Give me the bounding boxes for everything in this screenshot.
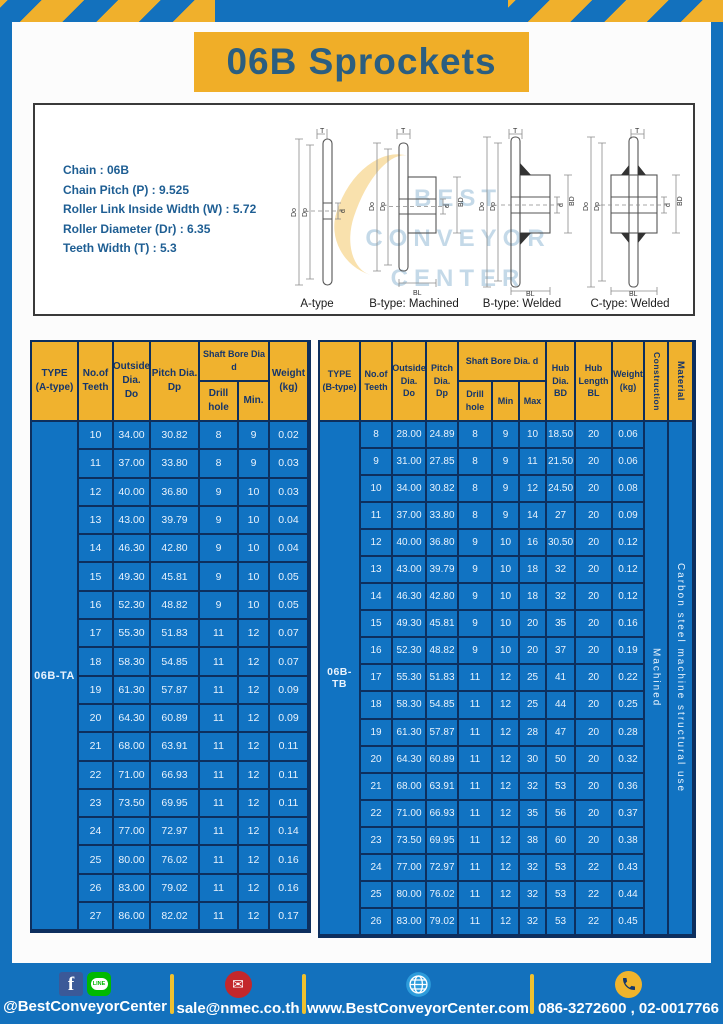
- table-cell: 21: [361, 774, 393, 801]
- table-cell: 49.30: [114, 563, 151, 591]
- table-cell: 12: [239, 733, 270, 761]
- table-cell: 32: [520, 882, 547, 909]
- column-header-max: Max: [520, 382, 547, 422]
- svg-text:Do: Do: [583, 202, 590, 211]
- corner-stripes-right: [508, 0, 723, 22]
- table-cell: 20: [576, 692, 613, 719]
- svg-text:BL: BL: [629, 291, 638, 297]
- sprocket-a-type-drawing: T Do Dp d: [275, 127, 359, 297]
- table-cell: 12: [520, 476, 547, 503]
- figure-label: A-type: [300, 298, 333, 310]
- table-cell: 39.79: [427, 557, 459, 584]
- chain-spec-line: Chain Pitch (P) : 9.525: [63, 181, 275, 201]
- table-cell: 72.97: [151, 818, 200, 846]
- table-cell: 44: [547, 692, 576, 719]
- table-cell: 36.80: [427, 530, 459, 557]
- table-cell: 11: [459, 855, 493, 882]
- table-cell: 10: [239, 507, 270, 535]
- table-cell: 9: [200, 535, 239, 563]
- table-cell: 0.05: [270, 563, 309, 591]
- table-cell: 0.11: [270, 762, 309, 790]
- footer-social-group[interactable]: f LINE @BestConveyorCenter: [0, 972, 170, 1015]
- table-cell: 76.02: [427, 882, 459, 909]
- table-cell: 11: [200, 733, 239, 761]
- column-header-type: TYPE (B-type): [320, 342, 361, 422]
- table-cell: 9: [459, 557, 493, 584]
- table-cell: 19: [79, 677, 114, 705]
- footer-email-group[interactable]: ✉ sale@nmec.co.th: [174, 971, 302, 1017]
- figure-label: C-type: Welded: [590, 298, 669, 310]
- table-cell: 12: [493, 774, 520, 801]
- table-cell: 55.30: [393, 665, 427, 692]
- table-cell: 73.50: [114, 790, 151, 818]
- table-cell: 11: [200, 875, 239, 903]
- table-cell: 77.00: [114, 818, 151, 846]
- table-cell: 20: [576, 774, 613, 801]
- chain-spec-line: Roller Link Inside Width (W) : 5.72: [63, 200, 275, 220]
- table-cell: 8: [459, 422, 493, 449]
- table-cell: 17: [79, 620, 114, 648]
- table-cell: 47: [547, 720, 576, 747]
- figure-label: B-type: Welded: [483, 298, 561, 310]
- figure-label: B-type: Machined: [369, 298, 459, 310]
- table-cell: 11: [459, 774, 493, 801]
- table-cell: 55.30: [114, 620, 151, 648]
- table-cell: 11: [200, 903, 239, 931]
- table-cell: 9: [239, 422, 270, 450]
- table-cell: 11: [200, 648, 239, 676]
- table-cell: 37: [547, 638, 576, 665]
- sprocket-b-welded-drawing: T Do Dp d BD: [469, 127, 575, 297]
- table-cell: 11: [459, 828, 493, 855]
- table-cell: 0.04: [270, 507, 309, 535]
- table-cell: 8: [361, 422, 393, 449]
- table-cell: 83.00: [114, 875, 151, 903]
- table-cell: 0.12: [613, 530, 645, 557]
- table-cell: 12: [493, 882, 520, 909]
- email-address[interactable]: sale@nmec.co.th: [176, 1000, 299, 1017]
- table-cell: 45.81: [151, 563, 200, 591]
- line-bubble: LINE: [91, 978, 108, 990]
- svg-text:BD: BD: [458, 197, 465, 207]
- email-icon[interactable]: ✉: [225, 971, 252, 998]
- table-cell: 0.09: [270, 705, 309, 733]
- table-cell: 43.00: [114, 507, 151, 535]
- sprocket-figure-a-type: T Do Dp d A-type: [275, 127, 359, 310]
- table-cell: 12: [239, 677, 270, 705]
- table-cell: 34.00: [114, 422, 151, 450]
- table-cell: 58.30: [393, 692, 427, 719]
- table-cell: 0.08: [613, 476, 645, 503]
- table-cell: 24.89: [427, 422, 459, 449]
- table-cell: 60.89: [427, 747, 459, 774]
- table-cell: 31.00: [393, 449, 427, 476]
- table-cell: 8: [200, 450, 239, 478]
- table-cell: 11: [200, 846, 239, 874]
- table-cell: 54.85: [151, 648, 200, 676]
- chain-specs: Chain : 06B Chain Pitch (P) : 9.525 Roll…: [35, 105, 275, 314]
- svg-text:Dp: Dp: [380, 202, 387, 211]
- table-cell: 79.02: [151, 875, 200, 903]
- table-cell: 11: [459, 801, 493, 828]
- table-cell: 0.09: [613, 503, 645, 530]
- table-cell: 20: [576, 557, 613, 584]
- svg-text:Dp: Dp: [594, 202, 601, 211]
- table-cell: 0.25: [613, 692, 645, 719]
- table-cell: 9: [459, 638, 493, 665]
- table-cell: 11: [520, 449, 547, 476]
- table-cell: 20: [576, 720, 613, 747]
- table-cell: 25: [520, 665, 547, 692]
- table-cell: 0.03: [270, 450, 309, 478]
- table-cell: 12: [493, 665, 520, 692]
- table-cell: 12: [493, 828, 520, 855]
- table-cell: 20: [576, 611, 613, 638]
- table-cell: 53: [547, 882, 576, 909]
- table-cell: 33.80: [427, 503, 459, 530]
- facebook-icon[interactable]: f: [59, 972, 83, 996]
- table-cell: 20: [576, 828, 613, 855]
- table-cell: 25: [520, 692, 547, 719]
- table-cell: 12: [239, 846, 270, 874]
- column-header-shaft-bore: Shaft Bore Dia. d: [459, 342, 547, 382]
- table-cell: 26: [79, 875, 114, 903]
- column-header-hub-dia: Hub Dia. BD: [547, 342, 576, 422]
- table-cell: 11: [459, 909, 493, 936]
- table-cell: 12: [493, 801, 520, 828]
- table-cell: 0.14: [270, 818, 309, 846]
- table-cell: 16: [79, 592, 114, 620]
- top-border-band: [0, 0, 723, 22]
- table-cell: 24.50: [547, 476, 576, 503]
- table-cell: 14: [520, 503, 547, 530]
- social-handle[interactable]: @BestConveyorCenter: [3, 998, 167, 1015]
- table-cell: 80.00: [114, 846, 151, 874]
- table-cell: 0.07: [270, 648, 309, 676]
- table-cell: 11: [200, 677, 239, 705]
- table-cell: 38: [520, 828, 547, 855]
- table-cell: 30.50: [547, 530, 576, 557]
- table-cell: 60: [547, 828, 576, 855]
- social-icons: f LINE: [59, 972, 111, 996]
- table-cell: 37.00: [393, 503, 427, 530]
- table-cell: 9: [361, 449, 393, 476]
- table-cell: 20: [79, 705, 114, 733]
- table-06b-ta: TYPE (A-type) No.of Teeth Outside Dia. D…: [30, 340, 311, 933]
- table-cell: 51.83: [427, 665, 459, 692]
- table-cell: 60.89: [151, 705, 200, 733]
- table-cell: 63.91: [427, 774, 459, 801]
- table-cell: 32: [520, 855, 547, 882]
- table-cell: 20: [576, 638, 613, 665]
- table-cell: 30: [520, 747, 547, 774]
- table-cell: 0.12: [613, 557, 645, 584]
- table-cell: 11: [459, 747, 493, 774]
- table-cell: 18: [79, 648, 114, 676]
- table-cell: 69.95: [151, 790, 200, 818]
- table-cell: 68.00: [114, 733, 151, 761]
- table-cell: 0.12: [613, 584, 645, 611]
- table-cell: 14: [79, 535, 114, 563]
- table-cell: 27: [79, 903, 114, 931]
- table-cell: 40.00: [114, 479, 151, 507]
- table-cell: 9: [200, 563, 239, 591]
- table-cell: 16: [520, 530, 547, 557]
- table-cell: 10: [239, 535, 270, 563]
- table-cell: 10: [361, 476, 393, 503]
- chain-spec-line: Roller Diameter (Dr) : 6.35: [63, 220, 275, 240]
- table-cell: 11: [459, 665, 493, 692]
- table-cell: 0.16: [270, 846, 309, 874]
- column-header-outside-dia: Outside Dia. Do: [114, 342, 151, 422]
- table-cell: 10: [239, 592, 270, 620]
- table-cell: 16: [361, 638, 393, 665]
- svg-text:d: d: [340, 209, 347, 213]
- table-cell: 10: [520, 422, 547, 449]
- svg-text:BL: BL: [526, 291, 535, 297]
- table-cell: 22: [79, 762, 114, 790]
- sprocket-c-welded-drawing: T Do Dp d BD: [577, 127, 683, 297]
- table-cell: 11: [200, 762, 239, 790]
- table-cell: 45.81: [427, 611, 459, 638]
- table-cell: 82.02: [151, 903, 200, 931]
- table-cell: 32: [520, 909, 547, 936]
- table-cell: 79.02: [427, 909, 459, 936]
- sprocket-figure-c-type-welded: T Do Dp d BD: [577, 127, 683, 310]
- table-cell: 51.83: [151, 620, 200, 648]
- table-cell: 27.85: [427, 449, 459, 476]
- table-cell: 76.02: [151, 846, 200, 874]
- table-cell: 8: [459, 503, 493, 530]
- table-cell: 49.30: [393, 611, 427, 638]
- table-cell: 11: [361, 503, 393, 530]
- table-cell: 12: [239, 705, 270, 733]
- table-cell: 21.50: [547, 449, 576, 476]
- table-cell: 0.37: [613, 801, 645, 828]
- table-cell: 57.87: [427, 720, 459, 747]
- table-cell: 46.30: [114, 535, 151, 563]
- table-cell: 12: [239, 875, 270, 903]
- table-cell: 12: [361, 530, 393, 557]
- table-cell: 27: [547, 503, 576, 530]
- table-cell: 9: [493, 503, 520, 530]
- column-header-teeth: No.of Teeth: [79, 342, 114, 422]
- table-cell: 53: [547, 855, 576, 882]
- table-cell: 10: [239, 479, 270, 507]
- footer-phone-group[interactable]: 086-3272600 , 02-0017766: [534, 971, 723, 1017]
- table-cell: 0.38: [613, 828, 645, 855]
- table-cell: 0.07: [270, 620, 309, 648]
- website-url[interactable]: www.BestConveyorCenter.com: [307, 1000, 529, 1017]
- table-cell: 19: [361, 720, 393, 747]
- table-cell: 9: [200, 592, 239, 620]
- svg-text:d: d: [444, 204, 451, 208]
- svg-text:Do: Do: [291, 208, 298, 217]
- table-cell: 8: [200, 422, 239, 450]
- type-label-cell: 06B-TB: [320, 422, 361, 936]
- table-cell: 12: [493, 720, 520, 747]
- table-cell: 12: [239, 790, 270, 818]
- table-cell: 53: [547, 774, 576, 801]
- table-cell: 12: [79, 479, 114, 507]
- table-cell: 13: [361, 557, 393, 584]
- table-cell: 25: [361, 882, 393, 909]
- table-cell: 36.80: [151, 479, 200, 507]
- table-cell: 22: [576, 855, 613, 882]
- catalog-page: 06B Sprockets BEST CONVEYOR CENTER Chain…: [0, 0, 723, 1024]
- table-cell: 9: [493, 449, 520, 476]
- table-cell: 34.00: [393, 476, 427, 503]
- column-header-drill-hole: Drill hole: [200, 382, 239, 422]
- table-cell: 54.85: [427, 692, 459, 719]
- table-cell: 0.02: [270, 422, 309, 450]
- table-cell: 0.45: [613, 909, 645, 936]
- table-cell: 10: [493, 638, 520, 665]
- column-header-min: Min: [493, 382, 520, 422]
- table-cell: 0.44: [613, 882, 645, 909]
- column-header-outside-dia: Outside Dia. Do: [393, 342, 427, 422]
- table-cell: 26: [361, 909, 393, 936]
- table-cell: 32: [547, 584, 576, 611]
- table-cell: 80.00: [393, 882, 427, 909]
- column-header-teeth: No.of Teeth: [361, 342, 393, 422]
- table-cell: 20: [576, 747, 613, 774]
- table-cell: 20: [576, 530, 613, 557]
- table-cell: 0.09: [270, 677, 309, 705]
- table-cell: 10: [239, 563, 270, 591]
- table-cell: 71.00: [393, 801, 427, 828]
- table-cell: 18.50: [547, 422, 576, 449]
- sprocket-figure-b-type-welded: T Do Dp d BD: [469, 127, 575, 310]
- table-cell: 15: [361, 611, 393, 638]
- table-cell: 12: [239, 818, 270, 846]
- table-cell: 83.00: [393, 909, 427, 936]
- table-cell: 66.93: [151, 762, 200, 790]
- table-cell: 11: [200, 620, 239, 648]
- phone-numbers[interactable]: 086-3272600 , 02-0017766: [538, 1000, 719, 1017]
- table-cell: 23: [79, 790, 114, 818]
- svg-text:T: T: [320, 128, 325, 135]
- table-cell: 22: [361, 801, 393, 828]
- column-header-hub-length: Hub Length BL: [576, 342, 613, 422]
- table-cell: 13: [79, 507, 114, 535]
- table-cell: 42.80: [151, 535, 200, 563]
- table-cell: 12: [493, 855, 520, 882]
- table-cell: 14: [361, 584, 393, 611]
- table-cell: 20: [576, 422, 613, 449]
- table-cell: 11: [200, 790, 239, 818]
- table-cell: 86.00: [114, 903, 151, 931]
- table-cell: 53: [547, 909, 576, 936]
- table-cell: 0.36: [613, 774, 645, 801]
- table-cell: 32: [547, 557, 576, 584]
- table-cell: 68.00: [393, 774, 427, 801]
- table-cell: 0.06: [613, 449, 645, 476]
- table-cell: 11: [200, 705, 239, 733]
- table-cell: 8: [459, 449, 493, 476]
- table-cell: 64.30: [393, 747, 427, 774]
- sprocket-figure-b-type-machined: T Do Dp d BD BL: [361, 127, 467, 310]
- table-cell: 11: [459, 720, 493, 747]
- table-cell: 25: [79, 846, 114, 874]
- page-title: 06B Sprockets: [226, 41, 496, 83]
- table-cell: 64.30: [114, 705, 151, 733]
- table-cell: 35: [547, 611, 576, 638]
- table-cell: 22: [576, 882, 613, 909]
- construction-value-cell: Machined: [645, 422, 669, 936]
- column-header-pitch-dia: Pitch Dia. Dp: [427, 342, 459, 422]
- material-value-cell: Carbon steel machine structural use: [669, 422, 694, 936]
- column-header-construction: Construction: [645, 342, 669, 422]
- column-header-type: TYPE (A-type): [32, 342, 79, 422]
- table-cell: 20: [520, 611, 547, 638]
- globe-icon[interactable]: [405, 971, 432, 998]
- table-cell: 58.30: [114, 648, 151, 676]
- table-cell: 20: [361, 747, 393, 774]
- svg-text:d: d: [558, 203, 565, 207]
- table-cell: 20: [576, 503, 613, 530]
- table-cell: 71.00: [114, 762, 151, 790]
- table-cell: 20: [576, 476, 613, 503]
- svg-text:Dp: Dp: [490, 202, 497, 211]
- svg-text:Do: Do: [369, 202, 376, 211]
- table-cell: 0.11: [270, 733, 309, 761]
- table-cell: 0.22: [613, 665, 645, 692]
- table-cell: 0.16: [270, 875, 309, 903]
- table-cell: 48.82: [151, 592, 200, 620]
- table-cell: 11: [459, 692, 493, 719]
- table-cell: 30.82: [427, 476, 459, 503]
- svg-text:Dp: Dp: [302, 208, 309, 217]
- svg-text:Do: Do: [479, 202, 486, 211]
- svg-text:BD: BD: [677, 196, 683, 206]
- column-header-drill-hole: Drill hole: [459, 382, 493, 422]
- table-cell: 10: [493, 557, 520, 584]
- footer-website-group[interactable]: www.BestConveyorCenter.com: [306, 971, 530, 1017]
- table-cell: 32: [520, 774, 547, 801]
- page-title-banner: 06B Sprockets: [194, 32, 529, 92]
- table-cell: 21: [79, 733, 114, 761]
- column-header-weight: Weight (kg): [270, 342, 309, 422]
- table-cell: 69.95: [427, 828, 459, 855]
- table-cell: 0.17: [270, 903, 309, 931]
- table-cell: 0.06: [613, 422, 645, 449]
- table-cell: 24: [361, 855, 393, 882]
- table-cell: 10: [79, 422, 114, 450]
- table-cell: 11: [459, 882, 493, 909]
- table-cell: 10: [493, 530, 520, 557]
- table-cell: 41: [547, 665, 576, 692]
- table-cell: 0.19: [613, 638, 645, 665]
- phone-icon[interactable]: [615, 971, 642, 998]
- table-cell: 61.30: [393, 720, 427, 747]
- table-cell: 17: [361, 665, 393, 692]
- chain-spec-line: Teeth Width (T) : 5.3: [63, 239, 275, 259]
- table-cell: 12: [493, 747, 520, 774]
- table-cell: 20: [520, 638, 547, 665]
- table-cell: 9: [239, 450, 270, 478]
- column-header-material: Material: [669, 342, 694, 422]
- table-cell: 28: [520, 720, 547, 747]
- table-cell: 10: [493, 611, 520, 638]
- table-06b-tb: TYPE (B-type) No.of Teeth Outside Dia. D…: [318, 340, 696, 938]
- table-cell: 0.28: [613, 720, 645, 747]
- table-cell: 0.43: [613, 855, 645, 882]
- table-cell: 0.03: [270, 479, 309, 507]
- table-cell: 9: [459, 584, 493, 611]
- line-app-icon[interactable]: LINE: [87, 972, 111, 996]
- table-cell: 33.80: [151, 450, 200, 478]
